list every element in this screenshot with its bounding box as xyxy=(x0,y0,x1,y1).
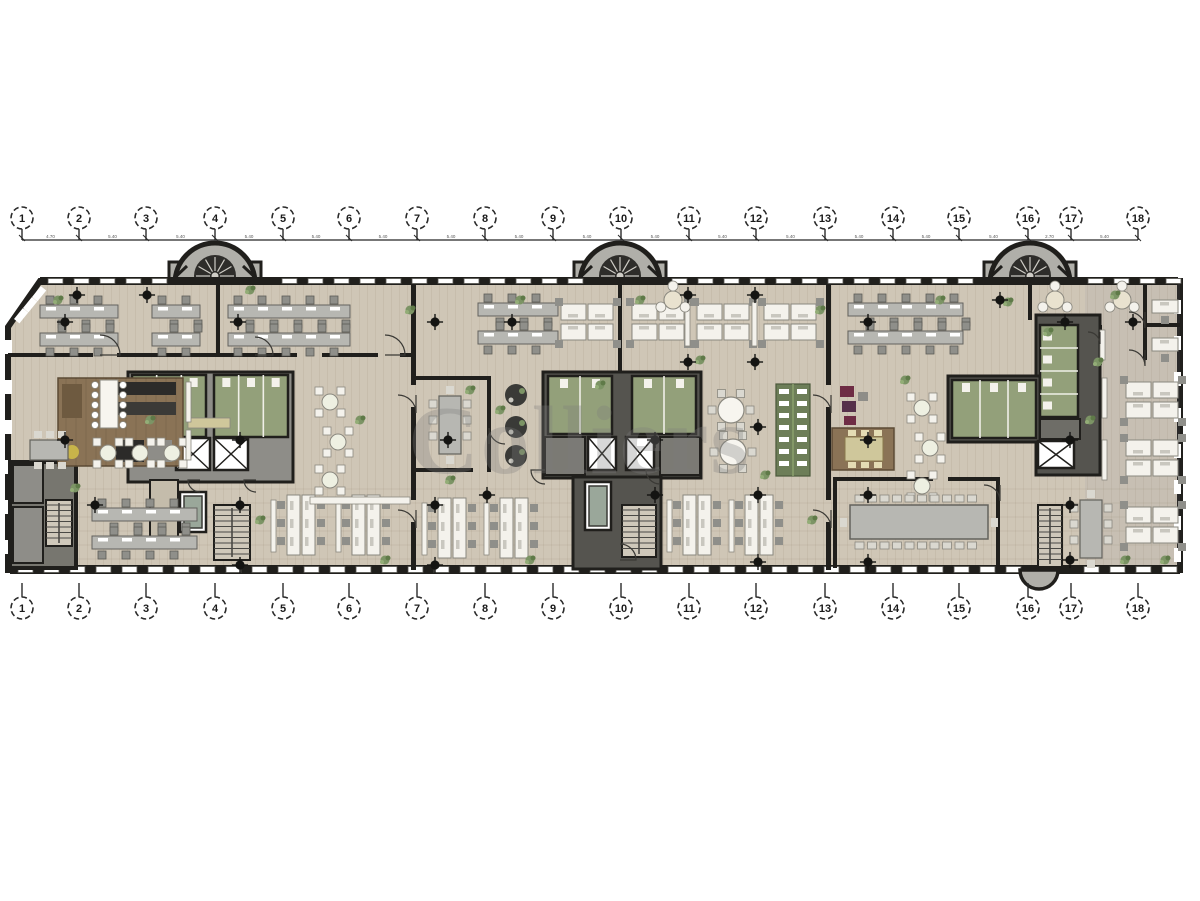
window xyxy=(412,279,427,284)
wall xyxy=(833,477,837,568)
small-meeting-room xyxy=(832,428,894,470)
stool xyxy=(120,382,127,389)
monitor xyxy=(797,461,807,466)
printer xyxy=(840,386,854,397)
chair xyxy=(1178,476,1186,484)
monitor xyxy=(170,538,180,542)
chair xyxy=(1178,418,1186,426)
chair xyxy=(182,527,190,535)
monitor xyxy=(282,307,292,311)
wc-fixture xyxy=(1018,383,1026,392)
stool xyxy=(92,402,99,409)
chair xyxy=(893,495,902,502)
monitor xyxy=(779,413,789,418)
grid-bubble-bottom-5: 5 xyxy=(272,583,294,619)
grid-bubble-bottom-18: 18 xyxy=(1127,583,1149,619)
chair xyxy=(775,501,783,509)
desk xyxy=(1152,300,1178,313)
chair xyxy=(748,448,756,456)
chair xyxy=(484,294,492,302)
lift-car xyxy=(589,486,607,526)
chair xyxy=(277,501,285,509)
window xyxy=(490,279,505,284)
window xyxy=(148,567,163,573)
chair xyxy=(93,438,101,446)
window xyxy=(174,567,189,573)
chair xyxy=(46,296,54,304)
monitor xyxy=(950,305,960,309)
chair xyxy=(1087,560,1095,568)
desk xyxy=(1152,338,1178,351)
chair xyxy=(1104,504,1112,512)
chair xyxy=(907,393,915,401)
chair xyxy=(429,416,437,424)
chair xyxy=(775,537,783,545)
chair xyxy=(930,542,939,549)
chair xyxy=(861,462,869,468)
window xyxy=(330,567,345,573)
monitor xyxy=(290,519,294,528)
monitor xyxy=(508,333,518,337)
chair xyxy=(713,519,721,527)
chair xyxy=(115,460,123,468)
monitor xyxy=(182,307,192,311)
chair xyxy=(345,427,353,435)
chair xyxy=(34,431,42,438)
chair xyxy=(1120,476,1128,484)
storage-strip xyxy=(1102,378,1107,418)
cafe-table xyxy=(100,445,116,461)
window xyxy=(48,279,63,284)
monitor xyxy=(748,537,752,546)
lift-lobby xyxy=(545,437,585,475)
grid-number: 5 xyxy=(280,213,286,225)
monitor xyxy=(441,522,445,531)
chair xyxy=(868,542,877,549)
desk xyxy=(632,304,657,320)
grid-number: 3 xyxy=(143,603,149,615)
chair xyxy=(147,438,155,446)
south-stair-bump xyxy=(1020,570,1058,589)
chair xyxy=(680,302,690,312)
desk xyxy=(561,304,586,320)
grid-bubble-bottom-3: 3 xyxy=(135,583,157,619)
chair xyxy=(710,448,718,456)
chair xyxy=(926,346,934,354)
chair xyxy=(1105,302,1115,312)
chair xyxy=(848,462,856,468)
chair xyxy=(337,465,345,473)
chair xyxy=(855,495,864,502)
monitor xyxy=(456,522,460,531)
wc-fixture xyxy=(962,383,970,392)
chair xyxy=(277,519,285,527)
table xyxy=(720,439,746,465)
chair xyxy=(428,540,436,548)
window xyxy=(200,567,215,573)
cafe-table xyxy=(330,434,346,450)
window xyxy=(5,340,12,354)
stool xyxy=(120,392,127,399)
table xyxy=(850,505,988,539)
chair xyxy=(330,348,338,356)
grid-number: 14 xyxy=(887,213,900,225)
chair xyxy=(555,298,563,306)
floor-plan-canvas: 4.705.405.405.405.405.405.405.405.405.40… xyxy=(0,0,1200,901)
wc-fixture xyxy=(990,383,998,392)
monitor xyxy=(484,305,494,309)
monitor xyxy=(779,449,789,454)
desk xyxy=(697,304,722,320)
chair xyxy=(115,438,123,446)
chair xyxy=(718,390,726,398)
grid-bubble-top-12: 12 xyxy=(745,207,767,241)
monitor xyxy=(441,540,445,549)
chair xyxy=(968,495,977,502)
dimension-value: 5.40 xyxy=(515,234,524,239)
monitor xyxy=(666,326,676,330)
grid-bubble-bottom-7: 7 xyxy=(406,583,428,619)
grid-number: 18 xyxy=(1132,603,1144,615)
chair xyxy=(158,527,166,535)
monitor xyxy=(1160,340,1169,344)
window xyxy=(906,279,921,284)
window xyxy=(1110,567,1125,573)
grid-bubble-top-14: 14 xyxy=(882,207,904,241)
chair xyxy=(258,296,266,304)
monitor xyxy=(771,326,781,330)
dimension-value: 5.40 xyxy=(447,234,456,239)
dimension-value: 5.40 xyxy=(583,234,592,239)
island-counter xyxy=(100,380,118,428)
grid-bubble-bottom-9: 9 xyxy=(542,583,564,619)
chair xyxy=(490,522,498,530)
table xyxy=(322,394,338,410)
chair xyxy=(463,432,471,440)
grid-bubble-top-6: 6 xyxy=(338,207,360,241)
window xyxy=(438,279,453,284)
chair xyxy=(306,296,314,304)
window xyxy=(386,279,401,284)
grid-number: 8 xyxy=(482,603,488,615)
chair xyxy=(294,324,302,332)
chair xyxy=(158,348,166,356)
window xyxy=(334,279,349,284)
window xyxy=(5,420,12,434)
desk xyxy=(228,333,350,346)
desk xyxy=(92,508,197,521)
monitor xyxy=(798,326,808,330)
chair xyxy=(878,294,886,302)
grid-number: 6 xyxy=(346,213,352,225)
window xyxy=(828,279,843,284)
monitor xyxy=(771,314,781,318)
chair xyxy=(530,522,538,530)
chair xyxy=(855,542,864,549)
cafe-table xyxy=(322,394,338,410)
grid-number: 6 xyxy=(346,603,352,615)
monitor xyxy=(779,425,789,430)
sofa xyxy=(62,384,82,418)
wc-fixture xyxy=(1043,379,1052,387)
table xyxy=(1046,291,1064,309)
wc-fixture xyxy=(644,379,652,388)
plant-room xyxy=(13,465,43,503)
monitor xyxy=(902,333,912,337)
chair xyxy=(720,432,728,440)
grid-bubble-bottom-1: 1 xyxy=(11,583,33,619)
chair xyxy=(918,542,927,549)
table xyxy=(914,400,930,416)
window xyxy=(694,567,709,573)
cafe-table xyxy=(322,472,338,488)
chair xyxy=(1117,281,1127,291)
stool xyxy=(92,382,99,389)
desk xyxy=(40,305,118,318)
grid-bubble-top-7: 7 xyxy=(406,207,428,241)
desk xyxy=(1153,440,1178,456)
window xyxy=(958,279,973,284)
monitor xyxy=(797,401,807,406)
chair xyxy=(890,322,898,330)
chair xyxy=(915,455,923,463)
chair xyxy=(691,340,699,348)
monitor xyxy=(595,314,605,318)
grid-number: 12 xyxy=(750,603,762,615)
chair xyxy=(317,537,325,545)
monitor xyxy=(639,326,649,330)
stool xyxy=(92,422,99,429)
table xyxy=(1080,500,1102,558)
grid-bubble-bottom-15: 15 xyxy=(948,583,970,619)
window xyxy=(668,567,683,573)
dimension-value: 4.70 xyxy=(46,234,55,239)
monitor xyxy=(146,538,156,542)
window xyxy=(698,279,713,284)
monitor xyxy=(701,519,705,528)
window xyxy=(5,380,12,394)
grid-bubble-bottom-10: 10 xyxy=(610,583,632,619)
grid-bubble-top-16: 16 xyxy=(1017,207,1039,241)
chair xyxy=(968,542,977,549)
monitor xyxy=(258,307,268,311)
grid-bubble-bottom-14: 14 xyxy=(882,583,904,619)
credenza xyxy=(188,418,230,428)
chair xyxy=(246,324,254,332)
chair xyxy=(277,537,285,545)
dimension-value: 5.40 xyxy=(855,234,864,239)
monitor xyxy=(701,537,705,546)
chair xyxy=(1120,543,1128,551)
monitor xyxy=(182,335,192,339)
window xyxy=(1140,279,1155,284)
monitor xyxy=(46,335,56,339)
monitor xyxy=(158,335,168,339)
grid-bubble-bottom-17: 17 xyxy=(1060,583,1082,619)
chair xyxy=(317,519,325,527)
monitor xyxy=(1133,462,1143,466)
grid-number: 11 xyxy=(683,603,695,615)
chair xyxy=(758,340,766,348)
chair xyxy=(82,324,90,332)
monitor xyxy=(797,413,807,418)
chair xyxy=(125,460,133,468)
monitor xyxy=(370,537,374,546)
window xyxy=(486,567,501,573)
chair xyxy=(907,471,915,479)
monitor xyxy=(704,326,714,330)
monitor xyxy=(98,510,108,514)
chair xyxy=(508,346,516,354)
grid-number: 11 xyxy=(683,213,695,225)
window xyxy=(776,279,791,284)
monitor xyxy=(1160,404,1170,408)
grid-number: 18 xyxy=(1132,213,1144,225)
monitor xyxy=(731,326,741,330)
grid-number: 9 xyxy=(550,213,556,225)
chair xyxy=(938,322,946,330)
chair xyxy=(46,431,54,438)
chair xyxy=(446,386,454,394)
monitor xyxy=(748,519,752,528)
monitor xyxy=(902,305,912,309)
window xyxy=(1166,279,1181,284)
wall xyxy=(216,285,220,355)
table xyxy=(100,445,116,461)
monitor xyxy=(170,510,180,514)
grid-bubble-top-15: 15 xyxy=(948,207,970,241)
window xyxy=(750,279,765,284)
chair xyxy=(902,294,910,302)
monitor xyxy=(686,519,690,528)
window xyxy=(282,279,297,284)
dimension-value: 5.40 xyxy=(989,234,998,239)
monitor xyxy=(779,389,789,394)
chair xyxy=(902,346,910,354)
desk xyxy=(92,536,197,549)
dimension-value: 5.40 xyxy=(922,234,931,239)
screen-divider xyxy=(422,503,427,555)
desk xyxy=(848,303,963,316)
wall xyxy=(487,376,491,472)
chair xyxy=(854,294,862,302)
grid-bubble-top-5: 5 xyxy=(272,207,294,241)
desk xyxy=(848,331,963,344)
window xyxy=(772,567,787,573)
grid-bubble-bottom-6: 6 xyxy=(338,583,360,619)
chair xyxy=(848,430,856,436)
chair xyxy=(918,495,927,502)
chair xyxy=(1129,302,1139,312)
chair xyxy=(490,504,498,512)
chair xyxy=(157,438,165,446)
window xyxy=(538,567,553,573)
monitor xyxy=(1160,392,1170,396)
chair xyxy=(530,540,538,548)
chair xyxy=(926,294,934,302)
storage-strip xyxy=(1100,330,1105,360)
monitor xyxy=(355,537,359,546)
monitor xyxy=(234,307,244,311)
wall xyxy=(826,285,831,385)
chair xyxy=(758,298,766,306)
printer xyxy=(842,401,856,412)
chair xyxy=(950,294,958,302)
monitor xyxy=(503,504,507,513)
desk xyxy=(40,333,118,346)
table xyxy=(132,445,148,461)
window xyxy=(850,567,865,573)
screen-divider xyxy=(336,500,341,552)
chair xyxy=(739,432,747,440)
wall xyxy=(411,407,416,500)
table xyxy=(718,397,744,423)
stool xyxy=(92,412,99,419)
chair xyxy=(282,348,290,356)
chair xyxy=(270,324,278,332)
monitor xyxy=(46,307,56,311)
grid-number: 2 xyxy=(76,213,82,225)
chair xyxy=(907,415,915,423)
plant-room xyxy=(13,507,43,563)
chair xyxy=(323,449,331,457)
monitor xyxy=(568,314,578,318)
chair xyxy=(691,298,699,306)
monitor xyxy=(798,314,808,318)
window xyxy=(720,567,735,573)
grid-number: 7 xyxy=(414,603,420,615)
chair xyxy=(1120,418,1128,426)
chair xyxy=(713,501,721,509)
grid-bubble-bottom-4: 4 xyxy=(204,583,226,619)
chair xyxy=(98,551,106,559)
chair xyxy=(484,346,492,354)
chair xyxy=(915,433,923,441)
chair xyxy=(937,433,945,441)
chair xyxy=(626,340,634,348)
chair xyxy=(170,324,178,332)
desk xyxy=(764,304,789,320)
monitor xyxy=(926,333,936,337)
window xyxy=(802,279,817,284)
monitor xyxy=(797,449,807,454)
wall xyxy=(948,477,1000,481)
chair xyxy=(1062,302,1072,312)
chair xyxy=(937,455,945,463)
storage-strip xyxy=(1102,440,1107,480)
monitor xyxy=(158,307,168,311)
chair xyxy=(718,422,726,430)
chair xyxy=(146,551,154,559)
monitor xyxy=(878,305,888,309)
chair xyxy=(613,340,621,348)
chair xyxy=(110,527,118,535)
window xyxy=(854,279,869,284)
window xyxy=(798,567,813,573)
wc-fixture xyxy=(222,378,230,387)
chair xyxy=(950,346,958,354)
monitor xyxy=(1133,404,1143,408)
pod-sofa xyxy=(505,445,527,467)
desk xyxy=(1126,382,1151,398)
chair xyxy=(234,296,242,304)
chair xyxy=(323,427,331,435)
grid-bubble-top-11: 11 xyxy=(678,207,700,241)
grid-bubble-top-3: 3 xyxy=(135,207,157,241)
chair xyxy=(1050,281,1060,291)
grid-number: 10 xyxy=(615,603,627,615)
chair xyxy=(626,298,634,306)
